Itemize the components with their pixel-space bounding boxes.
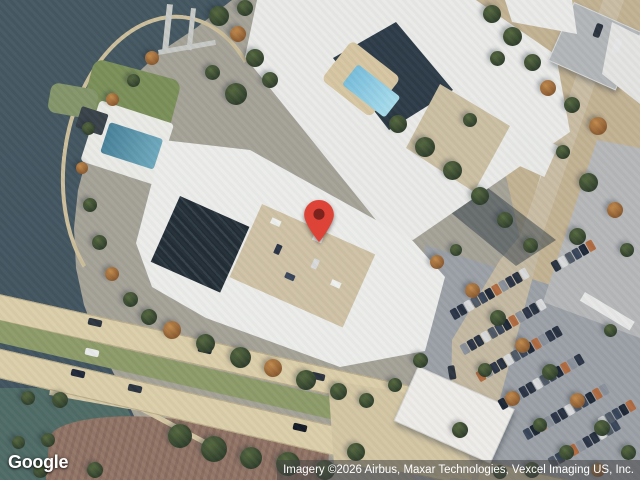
tree xyxy=(205,65,220,80)
tree xyxy=(465,283,480,298)
tree xyxy=(621,445,636,460)
tree xyxy=(76,162,88,174)
tree xyxy=(524,54,541,71)
tree xyxy=(490,310,506,326)
imagery-attribution: Imagery ©2026 Airbus, Maxar Technologies… xyxy=(277,460,640,480)
tree xyxy=(12,436,25,449)
tree xyxy=(92,235,107,250)
tree xyxy=(389,115,407,133)
tree xyxy=(123,292,138,307)
tree xyxy=(594,420,610,436)
tree xyxy=(413,353,428,368)
map-pin-icon[interactable] xyxy=(304,200,334,242)
tree xyxy=(604,324,617,337)
tree xyxy=(556,145,570,159)
tree xyxy=(589,117,607,135)
tree xyxy=(359,393,374,408)
tree xyxy=(347,443,365,461)
tree xyxy=(523,238,538,253)
tree xyxy=(262,72,278,88)
tree xyxy=(41,433,55,447)
tree xyxy=(141,309,157,325)
tree xyxy=(145,51,159,65)
tree xyxy=(230,347,251,368)
tree xyxy=(542,364,558,380)
tree xyxy=(570,393,585,408)
tree xyxy=(452,422,468,438)
google-logo[interactable]: Google xyxy=(8,452,68,473)
tree xyxy=(620,243,634,257)
tree xyxy=(607,202,623,218)
tree xyxy=(564,97,580,113)
tree xyxy=(21,391,35,405)
tree xyxy=(415,137,435,157)
tree xyxy=(237,0,253,16)
tree xyxy=(450,244,462,256)
tree xyxy=(490,51,505,66)
satellite-map[interactable]: Google Imagery ©2026 Airbus, Maxar Techn… xyxy=(0,0,640,480)
tree xyxy=(168,424,192,448)
tree xyxy=(559,445,574,460)
tree xyxy=(463,113,477,127)
tree xyxy=(497,212,513,228)
tree xyxy=(478,363,492,377)
tree xyxy=(471,187,489,205)
tree xyxy=(430,255,444,269)
tree xyxy=(443,161,462,180)
tree xyxy=(503,27,522,46)
tree xyxy=(209,6,229,26)
tree xyxy=(569,228,586,245)
tree xyxy=(163,321,181,339)
tree xyxy=(196,334,215,353)
tree xyxy=(82,122,95,135)
tree xyxy=(246,49,264,67)
tree xyxy=(330,383,347,400)
tree xyxy=(87,462,103,478)
tree xyxy=(540,80,556,96)
tree xyxy=(264,359,282,377)
tree xyxy=(83,198,97,212)
tree xyxy=(505,391,520,406)
tree xyxy=(515,338,530,353)
tree xyxy=(240,447,262,469)
tree xyxy=(296,370,316,390)
tree xyxy=(127,74,140,87)
tree xyxy=(388,378,402,392)
tree xyxy=(533,418,547,432)
tree xyxy=(483,5,501,23)
tree xyxy=(201,436,227,462)
tree xyxy=(230,26,246,42)
tree xyxy=(225,83,247,105)
tree xyxy=(106,93,119,106)
tree xyxy=(579,173,598,192)
tree xyxy=(105,267,119,281)
tree xyxy=(52,392,68,408)
